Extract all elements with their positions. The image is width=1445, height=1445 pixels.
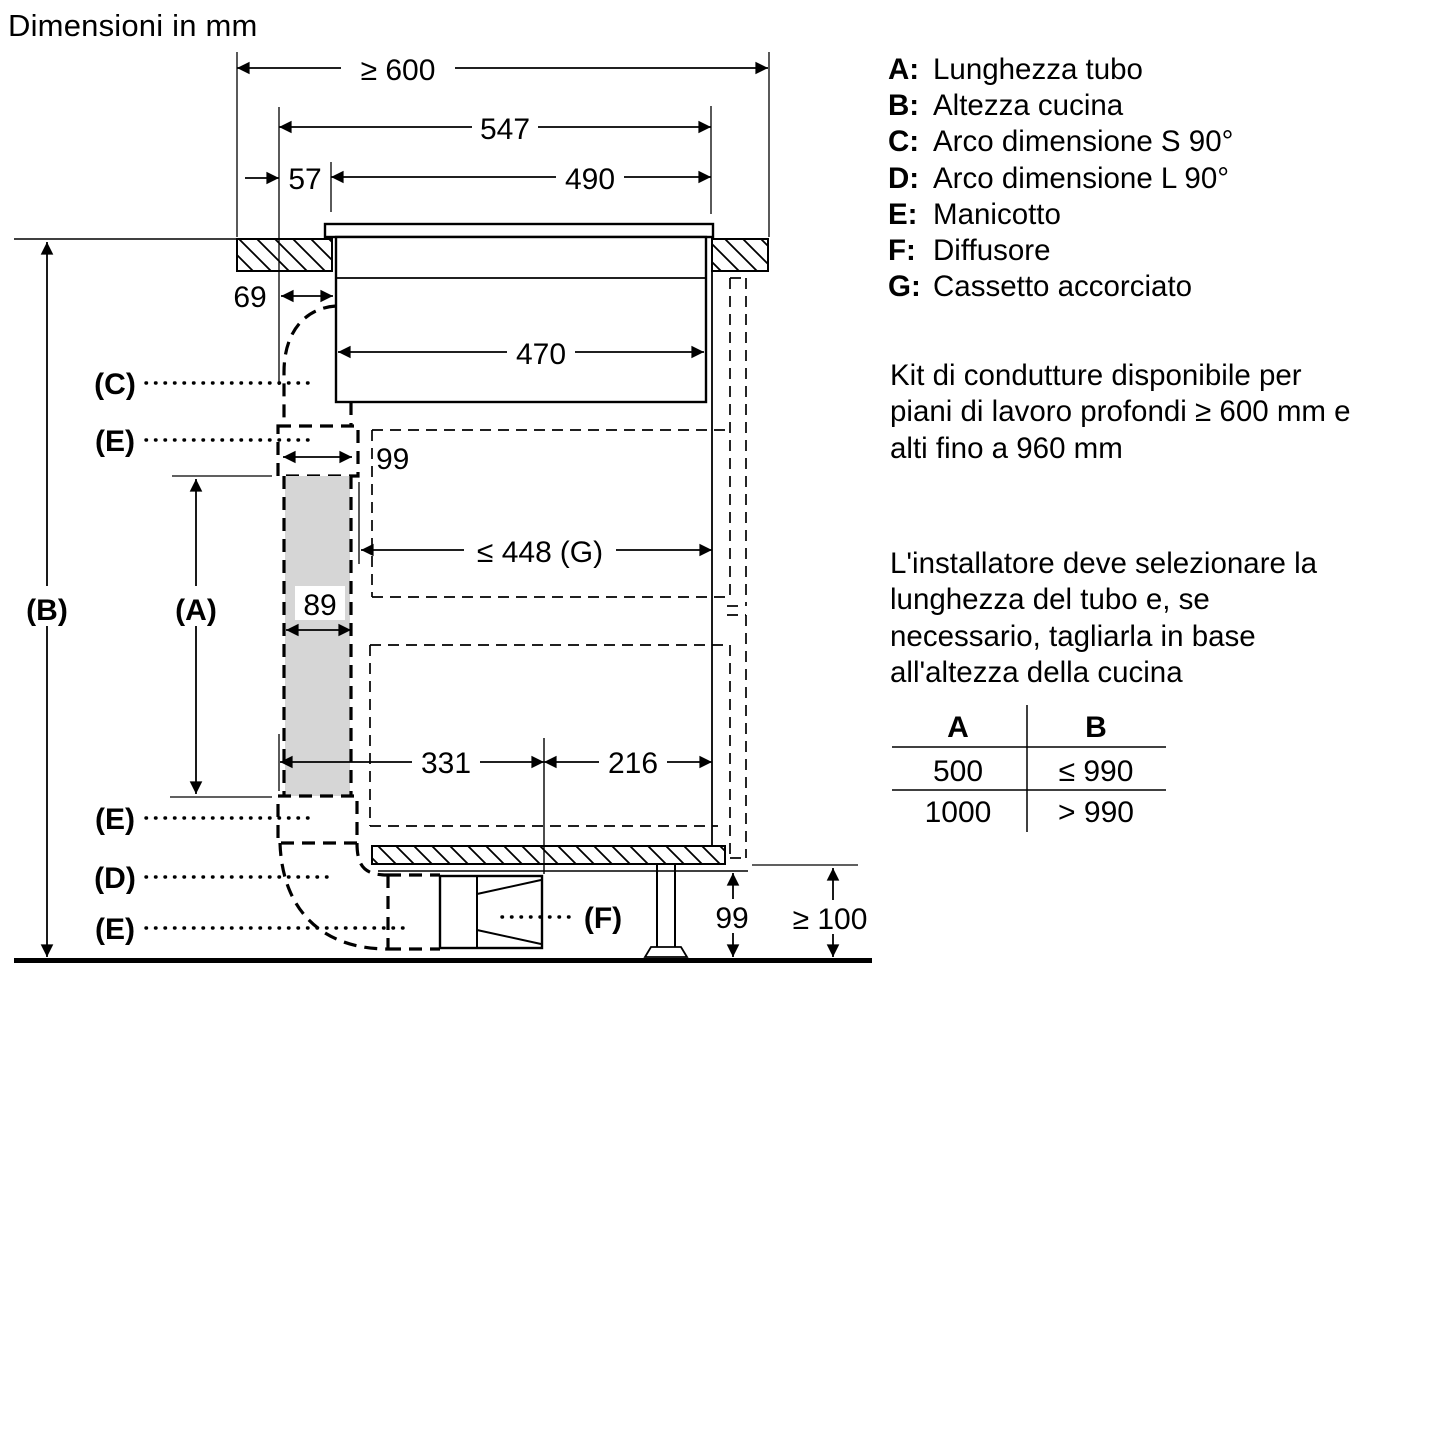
legend-item-A: A:Lunghezza tubo [888,52,1233,88]
cabinet-bottom-panel [372,846,725,864]
diffuser [440,876,542,948]
worktop-right-section [712,239,768,271]
dim-text: 470 [516,338,566,371]
legend-key: E: [888,197,933,233]
note-line: necessario, tagliarla in base [890,619,1317,655]
dim-manicotto-width: 99 [283,443,409,476]
dim-offset-57: 57 [245,163,322,196]
hob-top-plate [325,224,713,237]
extension-lines [170,52,858,865]
diagram-page: Dimensioni in mm [0,0,1445,1445]
legend-label: Manicotto [933,197,1061,233]
legend-label: Arco dimensione S 90° [933,124,1233,160]
legend-label: Diffusore [933,233,1051,269]
bend-s-outer [284,306,336,426]
tube-length-table: A B 500 ≤ 990 1000 > 990 [892,705,1166,832]
note-installer: L'installatore deve selezionare la lungh… [890,546,1317,692]
manicotto-lower [278,796,357,843]
table-header-b: B [1085,711,1107,744]
dim-hob-width: 547 [279,110,711,146]
dimensions: ≥ 600 547 57 490 470 [18,51,876,957]
legend-item-G: G:Cassetto accorciato [888,269,1233,305]
manicotto-upper [278,426,358,476]
legend-item-B: B:Altezza cucina [888,88,1233,124]
dim-kitchen-height-B: (B) [18,242,76,957]
legend-key: A: [888,52,933,88]
table-cell: 500 [933,755,983,788]
note-line: all'altezza della cucina [890,655,1317,691]
dim-text: 69 [233,281,266,314]
worktop-left-section [237,239,332,271]
dim-216: 216 [544,745,712,780]
dim-text: ≥ 100 [793,903,868,936]
dim-text: 99 [376,443,409,476]
dim-worktop-depth: ≥ 600 [237,51,768,87]
dim-text: 331 [421,747,471,780]
structure [14,224,872,961]
dim-text: 216 [608,747,658,780]
dim-text: 490 [565,163,615,196]
dim-text: ≥ 600 [361,54,436,87]
legend-key: F: [888,233,933,269]
dim-floor-clearance: ≥ 100 [786,868,876,957]
label-A: (A) [175,594,217,627]
table-header-a: A [947,711,969,744]
legend-label: Cassetto accorciato [933,269,1192,305]
legend-key: C: [888,124,933,160]
legend-key: D: [888,161,933,197]
dim-text: 89 [303,589,336,622]
note-line: alti fino a 960 mm [890,431,1351,467]
legend-item-C: C:Arco dimensione S 90° [888,124,1233,160]
label-E: (E) [95,803,135,836]
dim-text: 547 [480,113,530,146]
table-cell: 1000 [925,796,992,829]
dim-text: 57 [288,163,321,196]
dim-cutout-width: 490 [331,160,711,196]
label-D: (D) [94,862,136,895]
legend-label: Altezza cucina [933,88,1123,124]
label-C: (C) [94,368,136,401]
legend-key: B: [888,88,933,124]
note-line: L'installatore deve selezionare la [890,546,1317,582]
duct-tube-fill [285,476,350,796]
label-F: (F) [584,902,622,935]
dim-drawer-width: ≤ 448(G) [361,533,712,569]
hob-body [336,237,706,402]
dim-text: 99 [715,902,748,935]
diffuser-box [440,876,542,948]
note-line: Kit di condutture disponibile per [890,358,1351,394]
label-E: (E) [95,913,135,946]
cabinet-foot-base [645,947,687,957]
dim-text: ≤ 448(G) [477,536,603,569]
legend-item-F: F:Diffusore [888,233,1233,269]
table-cell: ≤ 990 [1059,755,1134,788]
dim-tube-length-A: (A) [167,479,225,794]
dim-offset-69: 69 [233,281,333,314]
legend-label: Arco dimensione L 90° [933,161,1229,197]
dim-plinth-height: 99 [706,873,758,957]
legend-label: Lunghezza tubo [933,52,1143,88]
label-B: (B) [26,594,68,627]
note-duct-kit: Kit di condutture disponibile per piani … [890,358,1351,467]
note-line: piani di lavoro profondi ≥ 600 mm e [890,394,1351,430]
table-cell: > 990 [1058,796,1134,829]
legend-item-D: D:Arco dimensione L 90° [888,161,1233,197]
label-E: (E) [95,425,135,458]
legend-key: G: [888,269,933,305]
legend-item-E: E:Manicotto [888,197,1233,233]
note-line: lunghezza del tubo e, se [890,582,1317,618]
legend: A:Lunghezza tubo B:Altezza cucina C:Arco… [888,52,1233,305]
